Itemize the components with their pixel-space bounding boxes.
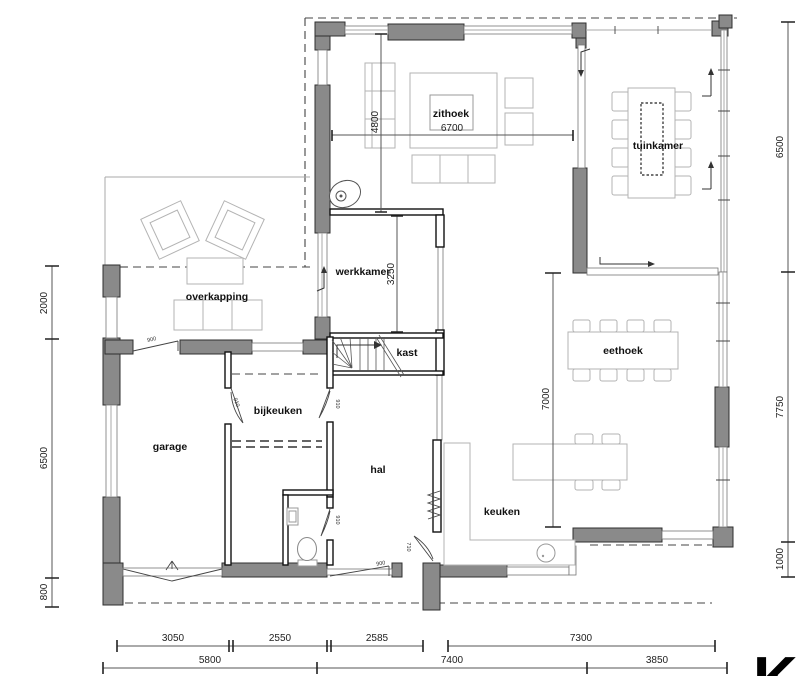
door-label: 910 [232,397,241,408]
toilet-icon [298,538,317,561]
toilet-room [287,508,317,566]
dim-werkkamer-depth: 3250 [386,262,397,285]
dim-bottom-bijkeuken: 2550 [269,633,292,644]
dim-bottom-garage: 3050 [162,633,185,644]
dim-left-mid: 6500 [39,446,50,469]
dim-bottom-total-mid: 7400 [441,655,464,666]
dim-zithoek-depth: 4800 [370,110,381,133]
overkapping-furniture [141,201,264,330]
room-label-bijkeuken: bijkeuken [254,405,302,417]
room-label-kast: kast [396,347,418,359]
dim-bottom-hal: 2585 [366,633,389,644]
door-label: 910 [334,515,340,524]
dim-right-top: 6500 [775,135,786,158]
room-label-werkkamer: werkkamer [335,266,391,278]
dim-bottom-total-right: 3850 [646,655,669,666]
dim-left-bottom: 800 [39,583,50,600]
dim-right-mid: 7750 [775,395,786,418]
dim-left-top: 2000 [39,291,50,314]
dim-living-depth: 7000 [541,387,552,410]
sink-icon [537,544,555,562]
kitchen-island [513,444,627,480]
left-dimensions: 2000 6500 800 [39,266,59,607]
room-label-garage: garage [153,441,188,453]
terrace-table [187,258,243,284]
bottom-dimensions: 3050 2550 2585 7300 5800 7400 3850 [103,633,727,674]
zithoek-furniture [325,63,533,213]
sofa [412,155,495,183]
logo-text: KL [753,645,800,676]
room-label-overkapping: overkapping [186,291,248,303]
dim-bottom-keuken: 7300 [570,633,593,644]
door-label: 710 [405,542,411,551]
overkapping-outline [105,177,310,265]
right-dimensions: 6500 7750 1000 [775,22,795,577]
floor-plan-svg: 900 910 910 910 710 900 zithoek tuinkame… [0,0,800,676]
door-label: 910 [334,399,340,408]
room-label-zithoek: zithoek [433,108,469,120]
terrace-sofa [174,300,262,330]
pouf [505,78,533,108]
room-label-tuinkamer: tuinkamer [633,140,683,152]
interior-walls [225,209,444,565]
fireplace-icon [325,175,365,212]
floor-plan-page: 900 910 910 910 710 900 zithoek tuinkame… [0,0,800,676]
dim-bottom-total-left: 5800 [199,655,222,666]
pouf [505,113,533,145]
door-label: 900 [147,336,157,344]
room-label-keuken: keuken [484,506,520,518]
dim-right-bottom: 1000 [775,547,786,570]
room-label-hal: hal [370,464,385,476]
dim-zithoek-width: 6700 [441,123,464,134]
room-label-eethoek: eethoek [603,345,643,357]
doors [123,341,433,581]
